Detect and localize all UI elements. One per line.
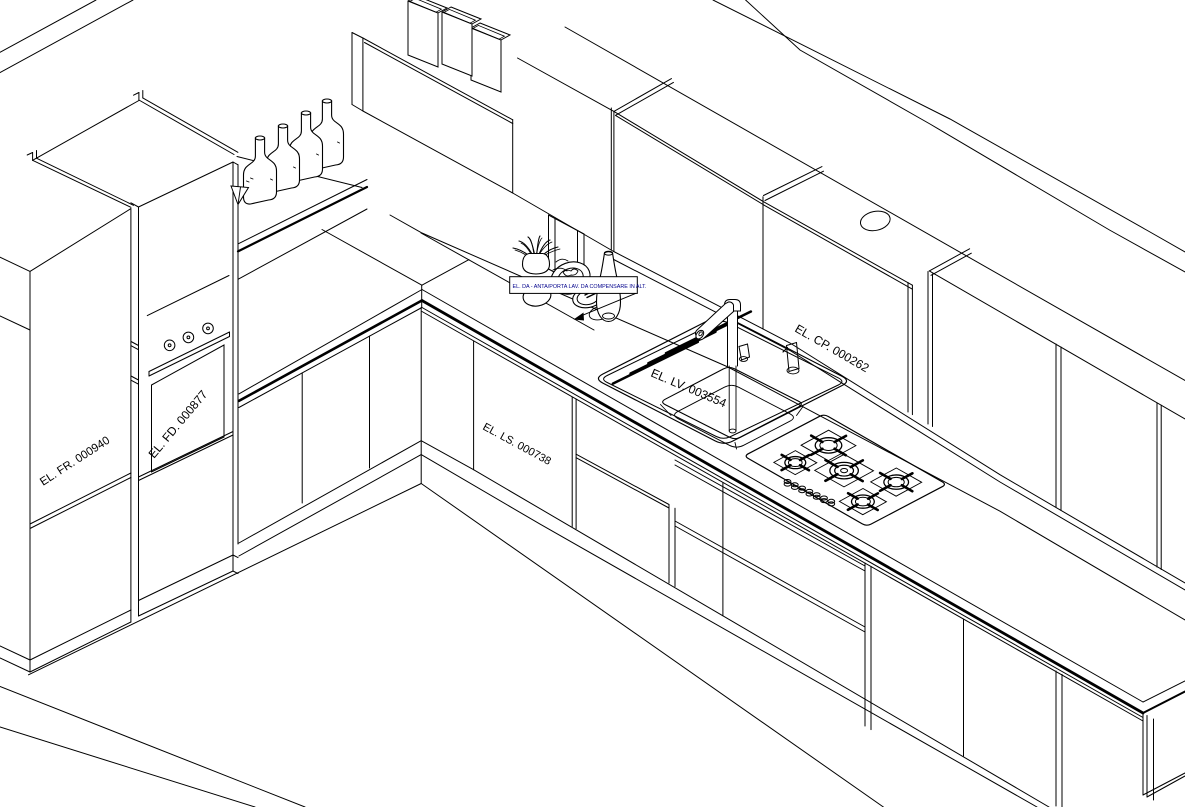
svg-text:EL. CP. 000262: EL. CP. 000262 bbox=[793, 321, 872, 375]
svg-text:EL. DA - ANTA/PORTA LAV. DA CO: EL. DA - ANTA/PORTA LAV. DA COMPENSARE I… bbox=[513, 284, 647, 290]
svg-text:EL. LS. 000738: EL. LS. 000738 bbox=[481, 421, 553, 468]
svg-text:EL. FR. 000940: EL. FR. 000940 bbox=[38, 435, 112, 489]
svg-text:EL. FD. 000877: EL. FD. 000877 bbox=[146, 387, 211, 461]
